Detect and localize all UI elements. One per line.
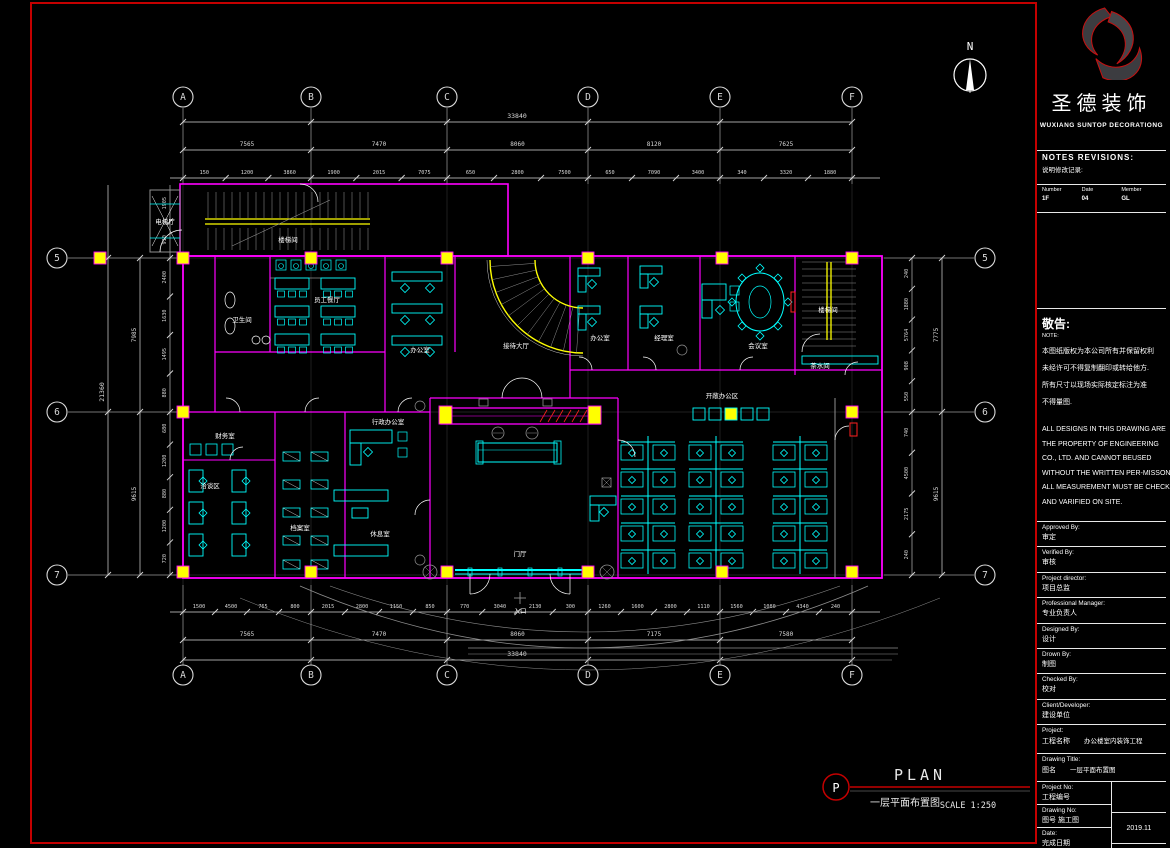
svg-text:1110: 1110: [697, 604, 710, 610]
notes-header-cn: 说明修改记录:: [1042, 164, 1161, 174]
field-value: 制图: [1042, 659, 1161, 669]
svg-text:1880: 1880: [904, 298, 910, 311]
svg-text:员工餐厅: 员工餐厅: [314, 295, 341, 304]
svg-text:1880: 1880: [824, 170, 837, 176]
field-value: 审核: [1042, 557, 1161, 567]
svg-text:F: F: [849, 670, 855, 681]
svg-text:7075: 7075: [418, 170, 431, 176]
svg-text:1260: 1260: [598, 604, 611, 610]
field-value: 完成日期: [1042, 838, 1106, 848]
svg-text:21360: 21360: [98, 382, 106, 402]
company-logo-icon: [1054, 4, 1150, 80]
svg-text:E: E: [717, 92, 723, 103]
svg-text:240: 240: [904, 550, 910, 559]
notice-cn-line: 不得量图.: [1042, 394, 1161, 411]
svg-text:开敞办公区: 开敞办公区: [706, 391, 739, 400]
svg-text:6: 6: [982, 407, 988, 418]
number-fields: Project No:工程编号Drawing No:图号 施工图Date:完成日…: [1037, 782, 1112, 844]
svg-text:680: 680: [162, 424, 168, 433]
field-label: Drawing No:: [1042, 807, 1106, 814]
svg-text:C: C: [444, 670, 450, 681]
svg-text:1600: 1600: [631, 604, 644, 610]
brand-name-cn: 圣德装饰: [1037, 87, 1166, 116]
notice-en-line: WITHOUT THE WRITTEN PER-MISSON: [1042, 467, 1161, 482]
svg-text:910: 910: [162, 235, 168, 244]
svg-text:240: 240: [831, 604, 840, 610]
svg-text:4500: 4500: [904, 467, 910, 480]
svg-text:8060: 8060: [510, 141, 525, 148]
svg-text:33840: 33840: [507, 112, 527, 120]
dimensions-top: 3384075657470806081207625150120038601900…: [170, 87, 880, 184]
notice-cn-line: 本图纸版权为本公司所有并保留权利: [1042, 343, 1161, 360]
drawing-sheet: 3384075657470806081207625150120038601900…: [0, 0, 1170, 848]
svg-text:P: P: [832, 781, 839, 795]
svg-text:5: 5: [982, 253, 988, 264]
svg-text:7: 7: [982, 570, 988, 581]
svg-text:340: 340: [737, 170, 746, 176]
field-label: Client/Developer:: [1042, 702, 1161, 709]
dimensions-left: 2136079859615190591024001630149588068012…: [47, 185, 180, 585]
field-value2: 一层平面布置图: [1070, 767, 1116, 774]
revision-col-label: Date: [1082, 187, 1122, 193]
revision-col-value: 1F: [1042, 196, 1082, 202]
svg-text:880: 880: [162, 489, 168, 498]
svg-text:5764: 5764: [904, 329, 910, 342]
svg-text:1630: 1630: [162, 310, 168, 323]
field-label: Professional Manager:: [1042, 600, 1161, 607]
svg-text:1905: 1905: [162, 197, 168, 210]
dimensions-right: 7775961524018805764908550740450021752405…: [884, 248, 995, 585]
field-value: 项目总监: [1042, 583, 1161, 593]
svg-text:7775: 7775: [933, 327, 940, 342]
svg-text:接待大厅: 接待大厅: [503, 341, 530, 350]
signature-fields: Approved By:审定Verified By:审核Project dire…: [1037, 522, 1166, 782]
field-label: Designed By:: [1042, 626, 1161, 633]
svg-text:入口: 入口: [514, 607, 527, 615]
svg-text:880: 880: [162, 388, 168, 397]
svg-text:办公室: 办公室: [410, 345, 430, 354]
revision-blank-area: [1037, 213, 1166, 309]
notice-english-lines: ALL DESIGNS IN THIS DRAWING ARETHE PROPE…: [1042, 423, 1161, 510]
svg-text:2175: 2175: [904, 508, 910, 521]
svg-text:7500: 7500: [558, 170, 571, 176]
field-value: 设计: [1042, 634, 1161, 644]
svg-text:1900: 1900: [327, 170, 340, 176]
revision-columns: Number1FDate04MemberGL: [1037, 185, 1166, 213]
floor-plan-canvas: 3384075657470806081207625150120038601900…: [0, 0, 1170, 848]
svg-text:3320: 3320: [780, 170, 793, 176]
svg-text:PLAN: PLAN: [894, 766, 946, 784]
svg-text:档案室: 档案室: [290, 523, 310, 532]
revision-col: MemberGL: [1121, 187, 1161, 210]
svg-text:7565: 7565: [240, 631, 255, 638]
notes-revisions-header: NOTES REVISIONS: 说明修改记录:: [1037, 151, 1166, 185]
svg-text:D: D: [585, 670, 591, 681]
svg-text:2800: 2800: [664, 604, 677, 610]
notice-en-line: ALL MEASUREMENT MUST BE CHECKED: [1042, 481, 1161, 496]
svg-text:1495: 1495: [162, 348, 168, 361]
field-value2: 办公楼室内装饰工程: [1084, 738, 1143, 745]
svg-text:2015: 2015: [373, 170, 386, 176]
svg-text:2800: 2800: [511, 170, 524, 176]
svg-text:1200: 1200: [241, 170, 254, 176]
field-value: 图号 施工图: [1042, 815, 1106, 825]
svg-text:B: B: [308, 92, 314, 103]
brand-name-en: WUXIANG SUNTOP DECORATIONG: [1037, 122, 1166, 129]
field-label: Drown By:: [1042, 651, 1161, 658]
notice-title: 敬告:: [1042, 317, 1070, 331]
svg-text:休息室: 休息室: [370, 529, 390, 538]
svg-text:300: 300: [566, 604, 575, 610]
svg-text:行政办公室: 行政办公室: [372, 417, 405, 426]
revision-col-value: 04: [1082, 196, 1122, 202]
svg-text:1500: 1500: [193, 604, 206, 610]
field-label: Project No:: [1042, 784, 1106, 791]
revision-col-label: Number: [1042, 187, 1082, 193]
title-block-field: Designed By:设计: [1037, 624, 1166, 649]
revision-col-label: Member: [1121, 187, 1161, 193]
svg-text:A: A: [180, 92, 186, 103]
north-arrow-icon: N: [954, 40, 986, 93]
title-block-field: Client/Developer:建设单位: [1037, 700, 1166, 725]
svg-text:9615: 9615: [933, 486, 940, 501]
svg-text:D: D: [585, 92, 591, 103]
date-cells: 2019.11: [1112, 782, 1166, 844]
svg-text:7470: 7470: [372, 631, 387, 638]
svg-text:2015: 2015: [322, 604, 335, 610]
svg-text:240: 240: [904, 269, 910, 278]
title-block-field: Project:工程名称办公楼室内装饰工程: [1037, 725, 1166, 753]
date-value-cell: 2019.11: [1112, 813, 1166, 844]
number-field: Drawing No:图号 施工图: [1037, 805, 1112, 828]
title-block-field: Project director:项目总监: [1037, 573, 1166, 598]
plan-footer: PPLAN一层平面布置图SCALE 1:250: [823, 766, 1030, 811]
notice-en-line: AND VARIFIED ON SITE.: [1042, 496, 1161, 511]
svg-text:770: 770: [460, 604, 469, 610]
svg-text:SCALE 1:250: SCALE 1:250: [940, 801, 996, 811]
field-label: Verified By:: [1042, 549, 1161, 556]
company-logo-section: 圣德装饰 WUXIANG SUNTOP DECORATIONG: [1037, 2, 1166, 151]
grid-centerlines: [68, 108, 974, 664]
title-block-field: Drawing Title:图名一层平面布置图: [1037, 754, 1166, 782]
number-field: Project No:工程编号: [1037, 782, 1112, 805]
field-value: 审定: [1042, 532, 1161, 542]
svg-text:2800: 2800: [356, 604, 369, 610]
revision-col: Number1F: [1042, 187, 1082, 210]
svg-text:经理室: 经理室: [654, 333, 674, 342]
title-block-field: Drown By:制图: [1037, 649, 1166, 674]
svg-text:908: 908: [904, 361, 910, 370]
svg-text:1200: 1200: [162, 455, 168, 468]
field-value: 工程名称办公楼室内装饰工程: [1042, 735, 1161, 746]
svg-text:电梯厅: 电梯厅: [155, 217, 175, 226]
notice-cn-line: 未经许可不得复制翻印或转给他方.: [1042, 360, 1161, 377]
blank-cell: [1112, 782, 1166, 813]
title-block-field: Professional Manager:专业负责人: [1037, 598, 1166, 623]
title-block-bottom: Project No:工程编号Drawing No:图号 施工图Date:完成日…: [1037, 782, 1166, 844]
stair-curved: [487, 260, 583, 356]
svg-text:5: 5: [54, 253, 60, 264]
svg-text:B: B: [308, 670, 314, 681]
field-label: Drawing Title:: [1042, 756, 1161, 763]
svg-text:门厅: 门厅: [514, 549, 528, 558]
svg-text:7470: 7470: [372, 141, 387, 148]
revision-col-value: GL: [1121, 196, 1161, 202]
svg-text:1560: 1560: [730, 604, 743, 610]
number-field: Date:完成日期: [1037, 828, 1112, 848]
doors: [160, 184, 858, 604]
svg-text:740: 740: [904, 428, 910, 437]
notice-subtitle: NOTE:: [1042, 333, 1161, 339]
svg-text:650: 650: [466, 170, 475, 176]
svg-text:800: 800: [290, 604, 299, 610]
svg-text:A: A: [180, 670, 186, 681]
svg-text:150: 150: [200, 170, 209, 176]
title-block-field: Checked By:校对: [1037, 674, 1166, 699]
columns: [94, 252, 858, 578]
title-block-field: Verified By:审核: [1037, 547, 1166, 572]
svg-text:财务室: 财务室: [215, 431, 235, 440]
svg-text:F: F: [849, 92, 855, 103]
svg-text:1200: 1200: [162, 520, 168, 533]
svg-text:850: 850: [425, 604, 434, 610]
svg-text:一层平面布置图: 一层平面布置图: [870, 797, 940, 809]
svg-text:7625: 7625: [779, 141, 794, 148]
svg-text:4340: 4340: [796, 604, 809, 610]
svg-text:9615: 9615: [131, 486, 138, 501]
svg-text:N: N: [967, 40, 974, 53]
svg-text:7175: 7175: [647, 631, 662, 638]
svg-text:楼梯间: 楼梯间: [278, 235, 298, 244]
svg-text:3040: 3040: [494, 604, 507, 610]
notice-section: 敬告: NOTE: 本图纸版权为本公司所有并保留权利未经许可不得复制翻印或转给他…: [1037, 309, 1166, 522]
walls: [150, 184, 882, 578]
svg-text:茶水间: 茶水间: [810, 361, 830, 370]
title-block-field: Approved By:审定: [1037, 522, 1166, 547]
svg-text:6: 6: [54, 407, 60, 418]
svg-text:2400: 2400: [162, 271, 168, 284]
svg-text:会议室: 会议室: [748, 341, 768, 350]
svg-text:2130: 2130: [529, 604, 542, 610]
svg-text:C: C: [444, 92, 450, 103]
svg-text:3400: 3400: [692, 170, 705, 176]
field-label: Checked By:: [1042, 676, 1161, 683]
svg-text:楼梯间: 楼梯间: [818, 305, 838, 314]
field-label: Project:: [1042, 727, 1161, 734]
field-value: 校对: [1042, 684, 1161, 694]
field-label: Approved By:: [1042, 524, 1161, 531]
dimensions-bottom: 3384075657470806071757580150045007658002…: [170, 585, 880, 685]
svg-text:4500: 4500: [225, 604, 238, 610]
svg-text:8120: 8120: [647, 141, 662, 148]
title-block: 圣德装饰 WUXIANG SUNTOP DECORATIONG NOTES RE…: [1035, 2, 1166, 844]
field-label: Date:: [1042, 830, 1106, 837]
svg-text:8060: 8060: [510, 631, 525, 638]
svg-text:7565: 7565: [240, 141, 255, 148]
svg-text:550: 550: [904, 392, 910, 401]
svg-text:办公室: 办公室: [590, 333, 610, 342]
field-label: Project director:: [1042, 575, 1161, 582]
notice-en-line: ALL DESIGNS IN THIS DRAWING ARE: [1042, 423, 1161, 438]
svg-text:卫生间: 卫生间: [232, 315, 252, 324]
svg-text:650: 650: [605, 170, 614, 176]
svg-text:720: 720: [162, 554, 168, 563]
field-value: 图名一层平面布置图: [1042, 764, 1161, 775]
field-value: 建设单位: [1042, 710, 1161, 720]
notes-header: NOTES REVISIONS:: [1042, 153, 1161, 162]
svg-text:洽谈区: 洽谈区: [200, 481, 220, 490]
svg-text:3860: 3860: [283, 170, 296, 176]
svg-text:7580: 7580: [779, 631, 794, 638]
notice-en-line: CO., LTD. AND CANNOT BEUSED: [1042, 452, 1161, 467]
notice-chinese-lines: 本图纸版权为本公司所有并保留权利未经许可不得复制翻印或转给他方.所有尺寸以现场实…: [1042, 343, 1161, 411]
svg-text:7: 7: [54, 570, 60, 581]
field-value: 工程编号: [1042, 792, 1106, 802]
svg-text:7985: 7985: [131, 327, 138, 342]
notice-en-line: THE PROPERTY OF ENGINEERING: [1042, 438, 1161, 453]
svg-text:765: 765: [258, 604, 267, 610]
revision-col: Date04: [1082, 187, 1122, 210]
svg-text:E: E: [717, 670, 723, 681]
notice-cn-line: 所有尺寸以现场实际核定标注为准: [1042, 377, 1161, 394]
field-value: 专业负责人: [1042, 608, 1161, 618]
svg-text:7090: 7090: [648, 170, 661, 176]
